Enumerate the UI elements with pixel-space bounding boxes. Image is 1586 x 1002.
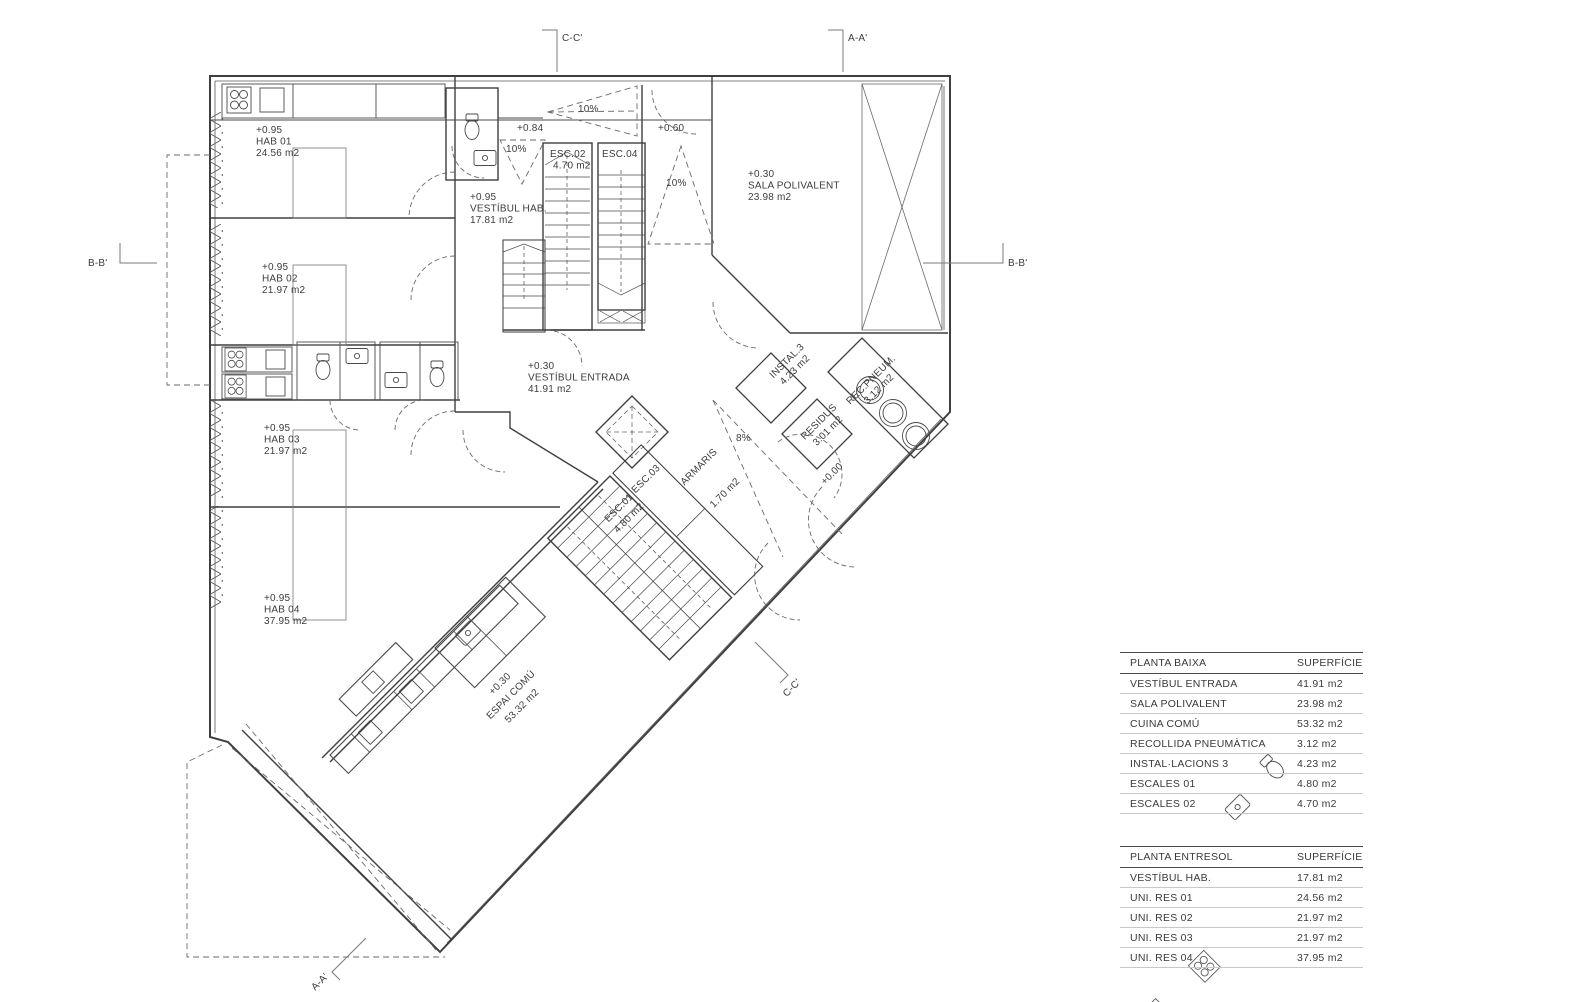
- ramp-arrows: [232, 86, 842, 950]
- table-row: INSTAL·LACIONS 3 4.23 m2: [1120, 754, 1363, 774]
- level-label-060: +0.60: [658, 123, 685, 134]
- table-row: UNI. RES 04 37.95 m2: [1120, 948, 1363, 968]
- slope-label-10b: 10%: [506, 144, 527, 155]
- section-marker-c-top: C-C': [562, 33, 582, 44]
- slope-label-10c: 10%: [666, 178, 687, 189]
- room-label-hab03-area: 21.97 m2: [264, 446, 308, 457]
- stove-icon: [227, 87, 251, 113]
- elevator: [596, 396, 668, 468]
- row-value: 24.56 m2: [1297, 892, 1343, 904]
- table-row: ESCALES 02 4.70 m2: [1120, 794, 1363, 814]
- stove-icon: [225, 348, 246, 371]
- toilet-icon: [316, 354, 330, 380]
- room-label-vestibul-hab-area: 17.81 m2: [470, 215, 514, 226]
- row-value: 23.98 m2: [1297, 698, 1343, 710]
- room-label-sala-name: SALA POLIVALENT: [748, 181, 840, 192]
- stove-icon: [1140, 999, 1172, 1002]
- table-row: UNI. RES 02 21.97 m2: [1120, 908, 1363, 928]
- stair-vestibul: [503, 240, 545, 332]
- row-value: 37.95 m2: [1297, 952, 1343, 964]
- sink-icon: [346, 349, 368, 364]
- section-marker-b-right: B-B': [1008, 258, 1027, 269]
- slope-label-10a: 10%: [578, 104, 599, 115]
- row-label: UNI. RES 04: [1120, 952, 1193, 964]
- table-col-superficie: SUPERFÍCIE: [1297, 851, 1363, 863]
- room-label-vestibul-entrada-name: VESTÍBUL ENTRADA: [528, 371, 630, 384]
- room-label-armaris-area: 1.70 m2: [708, 476, 742, 510]
- row-value: 21.97 m2: [1297, 932, 1343, 944]
- level-label-084: +0.84: [517, 123, 544, 134]
- table-col-superficie: SUPERFÍCIE: [1297, 657, 1363, 669]
- room-label-vestibul-hab-name: VESTÍBUL HAB.: [470, 202, 547, 215]
- room-label-hab01-name: HAB 01: [256, 137, 292, 148]
- table-title: PLANTA ENTRESOL: [1120, 851, 1233, 863]
- row-label: UNI. RES 03: [1120, 932, 1193, 944]
- row-value: 53.32 m2: [1297, 718, 1343, 730]
- row-label: RECOLLIDA PNEUMÀTICA: [1120, 738, 1266, 750]
- toilet-icon: [465, 114, 479, 140]
- table-row: RECOLLIDA PNEUMÀTICA 3.12 m2: [1120, 734, 1363, 754]
- row-label: ESCALES 01: [1120, 778, 1196, 790]
- mid-band-fixtures: [222, 342, 458, 400]
- room-label-sala-level: +0.30: [748, 169, 775, 180]
- room-label-hab02-name: HAB 02: [262, 274, 298, 285]
- table-planta-baixa: PLANTA BAIXA SUPERFÍCIE VESTÍBUL ENTRADA…: [1120, 652, 1363, 814]
- section-marker-c-bottom: C-C': [781, 677, 803, 699]
- sala-brace: [862, 84, 942, 330]
- room-label-hab02-level: +0.95: [262, 262, 289, 273]
- room-label-sala-area: 23.98 m2: [748, 192, 792, 203]
- table-row: SALA POLIVALENT 23.98 m2: [1120, 694, 1363, 714]
- room-label-hab01-level: +0.95: [256, 125, 283, 136]
- dashed-projection-lines: [167, 155, 445, 957]
- outer-walls: [210, 76, 950, 952]
- stove-icon: [225, 375, 246, 398]
- furniture: [293, 148, 346, 620]
- row-label: UNI. RES 02: [1120, 912, 1193, 924]
- row-value: 17.81 m2: [1297, 872, 1343, 884]
- row-label: SALA POLIVALENT: [1120, 698, 1227, 710]
- section-marker-leaders: [120, 30, 1003, 980]
- section-marker-a-top: A-A': [848, 33, 867, 44]
- table-row: ESCALES 01 4.80 m2: [1120, 774, 1363, 794]
- room-label-hab02-area: 21.97 m2: [262, 285, 306, 296]
- room-label-hab04-area: 37.95 m2: [264, 616, 308, 627]
- room-labels: +0.95 HAB 01 24.56 m2 +0.95 HAB 02 21.97…: [256, 125, 898, 725]
- stair-esc02: [545, 152, 590, 290]
- row-label: UNI. RES 01: [1120, 892, 1193, 904]
- row-label: VESTÍBUL HAB.: [1120, 872, 1211, 884]
- room-label-hab03-name: HAB 03: [264, 435, 300, 446]
- room-label-esc03-name: ESC.03: [630, 463, 663, 496]
- table-row: UNI. RES 01 24.56 m2: [1120, 888, 1363, 908]
- wall-hatch: [210, 112, 223, 608]
- room-label-vestibul-hab-level: +0.95: [470, 192, 497, 203]
- room-label-hab04-name: HAB 04: [264, 605, 300, 616]
- row-value: 4.23 m2: [1297, 758, 1337, 770]
- section-marker-a-bottom: A-A': [309, 971, 330, 992]
- section-marker-b-left: B-B': [88, 258, 107, 269]
- row-label: VESTÍBUL ENTRADA: [1120, 678, 1237, 690]
- table-row: VESTÍBUL HAB. 17.81 m2: [1120, 868, 1363, 888]
- table-header: PLANTA ENTRESOL SUPERFÍCIE: [1120, 846, 1363, 868]
- room-label-vestibul-entrada-level: +0.30: [528, 361, 555, 372]
- table-row: VESTÍBUL ENTRADA 41.91 m2: [1120, 674, 1363, 694]
- room-label-hab01-area: 24.56 m2: [256, 148, 300, 159]
- row-value: 4.80 m2: [1297, 778, 1337, 790]
- room-label-esc02-area: 4.70 m2: [553, 161, 591, 172]
- toilet-icon: [430, 361, 444, 387]
- room-label-armaris-name: ARMARIS: [679, 447, 720, 488]
- room-label-vestibul-entrada-area: 41.91 m2: [528, 384, 572, 395]
- row-value: 41.91 m2: [1297, 678, 1343, 690]
- interior-walls: [210, 76, 948, 940]
- room-label-esc04-name: ESC.04: [602, 149, 638, 160]
- row-label: CUINA COMÚ: [1120, 718, 1200, 730]
- table-header: PLANTA BAIXA SUPERFÍCIE: [1120, 652, 1363, 674]
- slope-label-8: 8%: [736, 433, 751, 444]
- room-label-esc02-name: ESC.02: [550, 149, 586, 160]
- row-value: 4.70 m2: [1297, 798, 1337, 810]
- row-value: 3.12 m2: [1297, 738, 1337, 750]
- sink-icon: [474, 151, 496, 166]
- sink-icon: [385, 373, 407, 388]
- table-row: CUINA COMÚ 53.32 m2: [1120, 714, 1363, 734]
- row-value: 21.97 m2: [1297, 912, 1343, 924]
- table-row: UNI. RES 03 21.97 m2: [1120, 928, 1363, 948]
- floor-plan-sheet: C-C' A-A' B-B' B-B' A-A' C-C' +0.95 HAB …: [0, 0, 1586, 1002]
- room-label-hab03-level: +0.95: [264, 423, 291, 434]
- table-title: PLANTA BAIXA: [1120, 657, 1206, 669]
- row-label: INSTAL·LACIONS 3: [1120, 758, 1228, 770]
- table-planta-entresol: PLANTA ENTRESOL SUPERFÍCIE VESTÍBUL HAB.…: [1120, 846, 1363, 968]
- room-label-hab04-level: +0.95: [264, 593, 291, 604]
- stair-esc04: [598, 170, 645, 323]
- row-label: ESCALES 02: [1120, 798, 1196, 810]
